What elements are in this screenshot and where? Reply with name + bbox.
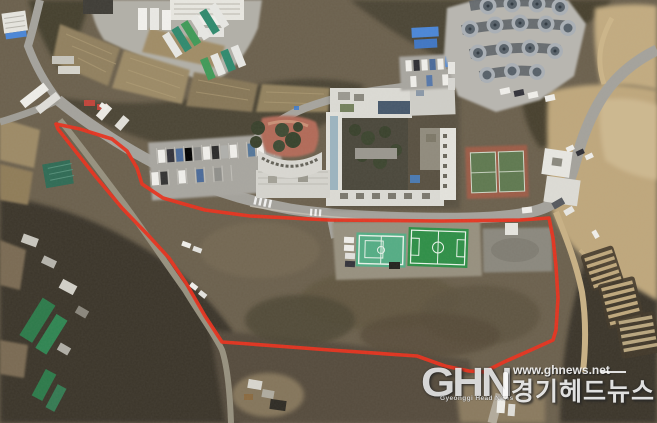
aerial-photo-canvas — [0, 0, 657, 423]
aerial-photo: GHN Gyeonggi Head News www.ghnews.net 경기… — [0, 0, 657, 423]
watermark-korean-name: 경기헤드뉴스 — [511, 372, 655, 408]
watermark-divider — [503, 372, 508, 399]
photo-grain — [0, 0, 657, 423]
